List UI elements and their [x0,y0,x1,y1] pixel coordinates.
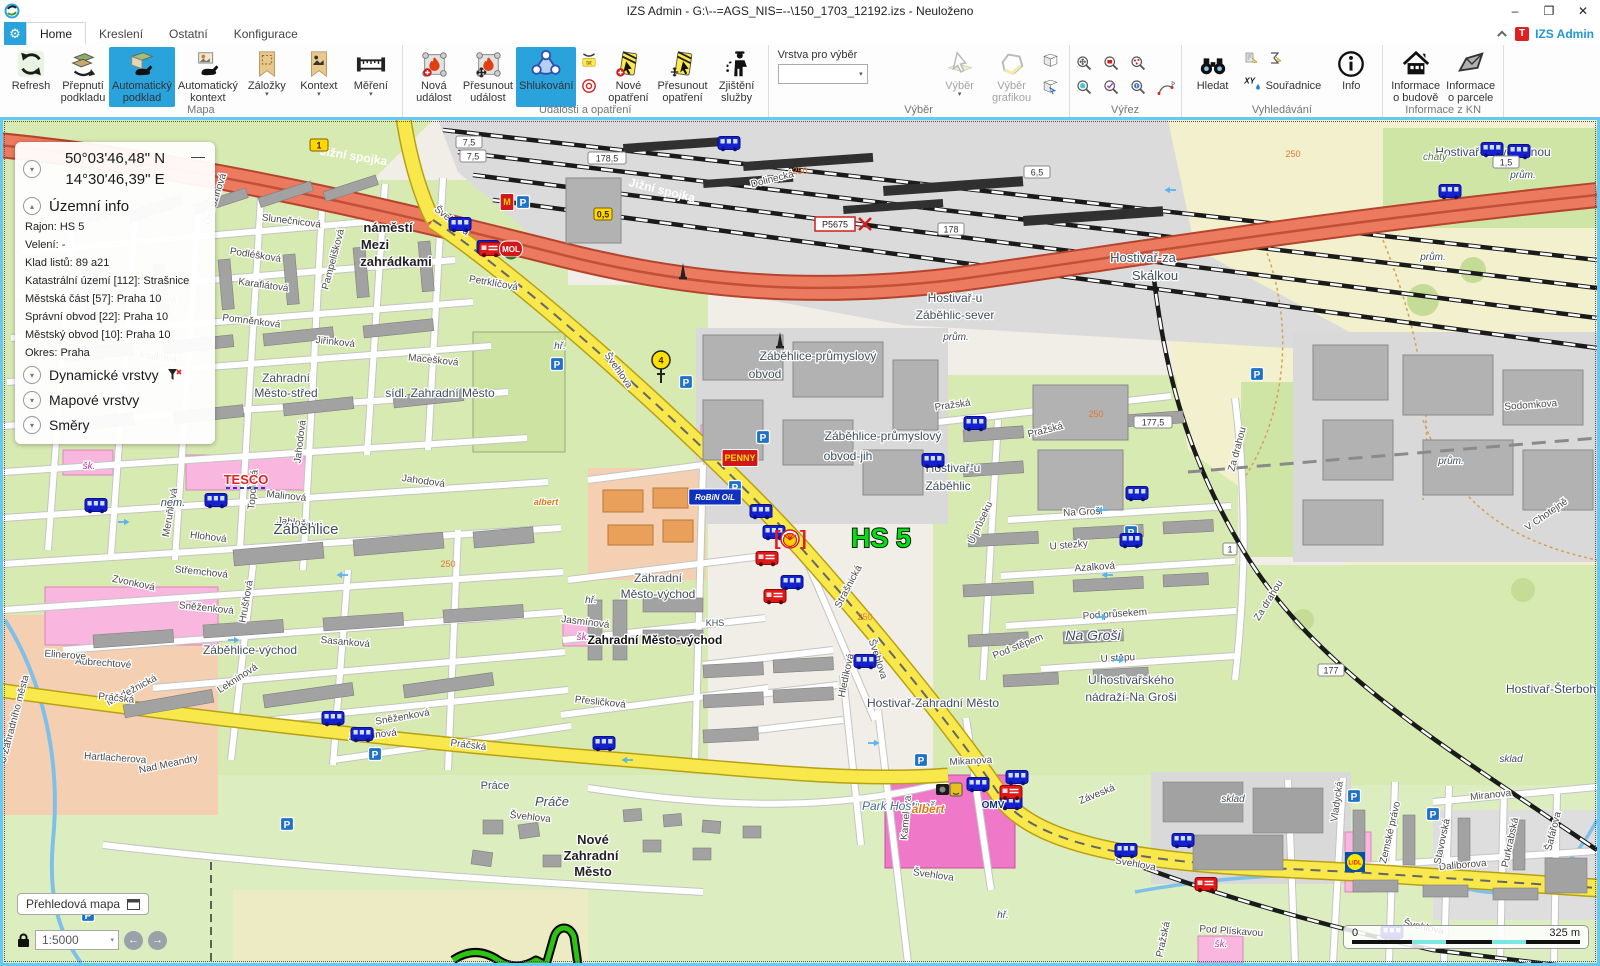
zjisteni-sluzby-button[interactable]: Zjištění služby [711,47,763,107]
coordinate-lon: 14°30'46,39" E [41,169,189,190]
coords-expand-icon[interactable]: ▾ [23,160,41,178]
parcel-icon [1456,48,1486,80]
brand-logo-icon: T [1515,27,1529,41]
coordinates: 50°03'46,48" N 14°30'46,39" E [41,148,189,190]
history-back-button[interactable]: ← [124,931,143,950]
info-icon [1336,48,1366,80]
svg-text:[: [ [774,528,781,550]
automaticky-podklad-label: Automatický podklad [112,80,172,104]
chevron-down-icon: ▾ [369,92,373,98]
zoom-circle-icon[interactable] [1075,77,1095,97]
informace-o-parcele-label: Informace o parcele [1446,80,1495,104]
district-label: Práče [535,794,569,809]
info-button[interactable]: Info [1325,47,1377,107]
hledat-label: Hledat [1197,80,1229,92]
scale-select[interactable]: 1:5000 ▾ [35,930,119,950]
district-label: Záběhlice [273,521,338,538]
parking-icon[interactable] [1251,368,1264,381]
district-label: sklad [1221,794,1245,805]
shlukovani-button[interactable]: Shlukování [516,47,576,107]
bus-icon[interactable] [351,728,373,743]
udalost-mini: txt [576,47,602,99]
district-label: Hostivař-Zahradní Město [867,696,999,710]
ribbon-group-label: Vyhledávání [1182,104,1383,116]
zoom-check-icon[interactable] [1102,77,1122,97]
close-button[interactable]: ✕ [1566,0,1600,22]
section-uzemni-info: Územní info [49,198,129,215]
info-label: Info [1342,80,1360,92]
firefighter-icon [722,48,752,80]
logo-robin-oil: RoBiN OiL [689,489,742,505]
svg-text:txt: txt [587,61,593,67]
scale-bar-min: 0 [1352,927,1358,939]
district-label: zahrádkami [360,254,432,269]
shlukovani-label: Shlukování [519,80,573,92]
vrstva-pro-vyber-label: Vrstva pro výběr [778,49,930,61]
territory-info-line: Městský obvod [10]: Praha 10 [25,329,207,341]
district-label: Záběhlice-průmyslový [825,429,942,443]
crossing-badge-label: P5675 [822,220,848,230]
district-label: Skalkou [1132,268,1178,283]
km-badge-label: 7,5 [467,152,480,162]
tab-konfigurace[interactable]: Konfigurace [221,22,311,45]
fire-truck-icon[interactable] [1195,878,1217,893]
fire-truck-icon[interactable] [1000,786,1022,801]
km-badge-label: 1 [1227,545,1232,555]
map-viewport[interactable]: P [0,117,1600,966]
binoculars-icon [1198,48,1228,80]
ruler-icon [356,48,386,80]
vrstva-pro-vyber: Vrstva pro výběr▾ [774,47,934,86]
bus-icon[interactable] [322,712,344,727]
elevation-label: 250 [1285,149,1300,159]
filter-icon[interactable] [167,368,182,382]
district-label: Práce [481,780,510,792]
district-label: Zahradní [564,848,619,863]
bus-icon[interactable] [1439,185,1461,200]
district-label: chaty [1423,152,1448,163]
elevation-label: 250 [1088,409,1103,419]
zoom-a-icon[interactable] [1129,77,1149,97]
elevation-label: 250 [440,559,455,569]
elevation-label: 250 [792,166,807,176]
hledat-button[interactable]: Hledat [1187,47,1239,107]
svg-text:TESCO: TESCO [224,472,269,487]
bus-icon[interactable] [593,737,615,752]
district-label: hř. [585,595,597,606]
title-bar: IZS Admin - G:\--=AGS_NIS=--\150_1703_12… [0,0,1600,22]
street-label: U stěpu [1100,652,1135,665]
km-badge-label: 178,5 [596,154,619,164]
parking-icon[interactable] [369,748,382,761]
panel-collapse-button[interactable]: — [189,148,207,164]
street-label: Na Groši [1063,506,1103,519]
district-label: šk. [577,632,590,643]
presunout-opatreni-button[interactable]: Přesunout opatření [654,47,710,107]
logo-omv: OMV [982,800,1005,811]
district-label: prům. [1419,251,1446,263]
ribbon-tabs: HomeKresleníOstatníKonfigurace [26,22,311,45]
km-badge-label: 177 [1323,666,1338,676]
txt-icon[interactable]: txt [578,49,600,71]
map-lamp-icon [127,48,157,80]
district-label: Mezi [361,237,389,252]
chevron-down-icon: ▾ [265,92,269,98]
hs5-station-label[interactable]: HS 5 [851,523,911,553]
mapove-vrstvy-expand-icon[interactable]: ▾ [23,391,41,409]
event-new-icon [419,48,449,80]
fire-truck-icon[interactable] [756,552,778,567]
house-icon [1401,48,1431,80]
bus-icon[interactable] [718,137,740,152]
automaticky-kontext-button[interactable]: Automatický kontext [175,47,241,107]
lock-icon[interactable] [17,933,30,948]
scale-caret-icon: ▾ [110,936,118,944]
road-number-label: 0,5 [597,210,610,220]
vyber-button[interactable]: Výběr▾ [934,47,986,107]
parking-icon[interactable] [517,196,530,209]
ribbon-tab-row: ⚙ HomeKresleníOstatníKonfigurace T IZS A… [0,22,1600,45]
bookmark-dashed-icon [252,48,282,80]
district-label: sídl. Zahradní Město [385,386,495,400]
vrstva-pro-vyber-select[interactable]: ▾ [778,64,868,84]
refresh-label: Refresh [12,80,51,92]
gear-icon: ⚙ [9,26,21,42]
bus-icon[interactable] [922,454,944,469]
select-cursor-icon [945,48,975,80]
district-label: Hostivař-u [928,291,983,305]
smery-expand-icon[interactable]: ▾ [23,416,41,434]
sheet-select-icon[interactable] [1040,49,1062,71]
km-badge-label: 6,5 [1031,168,1044,178]
prepnuti-podkladu-button[interactable]: Přepnutí podkladu [57,47,109,107]
parking-icon[interactable] [915,754,928,767]
ribbon-group-label: Informace z KN [1383,104,1503,116]
parking-icon[interactable] [1427,808,1440,821]
minimize-button[interactable]: – [1498,0,1532,22]
district-label: KHS [706,618,725,628]
sheet-export-icon[interactable] [1040,75,1062,97]
nove-opatreni-button[interactable]: Nové opatření [602,47,654,107]
svg-text:MOL: MOL [502,245,520,254]
fire-truck-icon[interactable] [764,590,786,605]
bus-icon[interactable] [1172,834,1194,849]
district-label: Záběhlice-průmyslový [760,349,877,363]
bus-icon[interactable] [1115,844,1137,859]
refresh-button[interactable]: Refresh [5,47,57,107]
district-label: šk. [1215,939,1228,950]
ribbon-group-label: Mapa [0,104,402,116]
cluster-icon [531,48,561,80]
shell-logo: [] [774,528,807,550]
svg-text:albert: albert [534,497,560,507]
district-label: prům. [942,331,969,343]
prepnuti-podkladu-label: Přepnutí podkladu [61,80,106,104]
sheet-calc-icon[interactable] [1243,50,1259,71]
nova-udalost-label: Nová událost [416,80,451,104]
uzemni-info-collapse-icon[interactable]: ▴ [23,197,41,215]
district-label: Záběhlic-sever [916,308,995,322]
target-icon[interactable] [578,75,600,97]
lidl-logo: LiDL [1345,852,1365,872]
zoom-route-icon[interactable] [1156,77,1176,97]
district-label: Na Groši [1065,627,1121,643]
logo-m: M [500,194,514,211]
mereni-button[interactable]: Měření▾ [345,47,397,107]
ribbon-group: HledatXYSouřadniceInfoVyhledávání [1182,45,1384,117]
bus-icon[interactable] [750,505,772,520]
district-label: obvod [749,367,782,381]
bus-icon[interactable] [449,218,471,233]
parking-icon[interactable] [551,358,564,371]
ribbon-group: Výřez [1070,45,1182,117]
svg-text:OMV: OMV [982,800,1005,811]
informace-o-budove-label: Informace o budově [1391,80,1440,104]
district-label: prům. [1509,169,1536,181]
maximize-button[interactable]: ❐ [1532,0,1566,22]
map-canvas[interactable]: P [3,120,1597,963]
km-badge-label: 178 [943,225,958,235]
refresh-icon [16,48,46,80]
district-label: Zahradní [262,371,311,385]
ribbon-group: Vrstva pro výběr▾Výběr▾Výběr grafikouVýb… [769,45,1070,117]
ribbon-right-controls: T IZS Admin [1495,22,1594,45]
road-number-label: 4 [658,356,663,366]
overview-map-label: Přehledová mapa [26,897,120,911]
zoom-rect-icon[interactable] [1102,53,1122,73]
district-label: Město [574,864,612,879]
bookmark-pin-icon [304,48,334,80]
territory-info-panel: ▾ 50°03'46,48" N 14°30'46,39" E — ▴ Územ… [15,142,215,444]
bus-icon[interactable] [964,417,986,432]
km-badge-label: 177,5 [1142,418,1165,428]
window-title: IZS Admin - G:\--=AGS_NIS=--\150_1703_12… [0,4,1600,18]
ribbon-collapse-icon[interactable] [1495,27,1509,41]
logo-tesco: TESCO [224,472,269,488]
presunout-udalost-label: Přesunout událost [463,80,513,104]
parking-icon[interactable] [757,431,770,444]
scale-value: 1:5000 [42,933,79,947]
informace-o-parcele-button[interactable]: Informace o parcele [1443,47,1498,107]
bus-icon[interactable] [1120,534,1142,549]
event-move-icon [473,48,503,80]
bus-icon[interactable] [1126,487,1148,502]
xy-icon[interactable]: XY [1243,74,1263,97]
zjisteni-sluzby-label: Zjištění služby [719,80,754,104]
district-label: šk. [83,461,96,472]
district-label: nem. [161,497,185,509]
nove-opatreni-label: Nové opatření [608,80,648,104]
parking-icon[interactable] [1348,790,1361,803]
ribbon-group: Nová událostPřesunout událostShlukovánít… [403,45,769,117]
district-label: prům. [1437,455,1464,467]
district-label: Nové [577,832,609,847]
fire-truck-icon[interactable] [479,243,501,258]
district-label: Hostivař-za [1110,250,1177,265]
territory-info-line: Katastrální území [112]: Strašnice [25,275,207,287]
zalozky-button[interactable]: Záložky▾ [241,47,293,107]
logo-albert: albert [534,497,560,507]
parking-icon[interactable] [281,818,294,831]
brand-name: IZS Admin [1535,27,1594,41]
automaticky-kontext-label: Automatický kontext [178,80,238,104]
district-label: Záběhlice-východ [203,643,297,657]
km-badge-label: 1,5 [1500,158,1513,168]
measure-new-icon [613,48,643,80]
district-label: obvod-jih [824,449,873,463]
chevron-down-icon: ▾ [859,70,867,78]
district-label: náměstí [363,220,413,235]
svg-text:RoBiN OiL: RoBiN OiL [695,493,735,502]
automaticky-podklad-button[interactable]: Automatický podklad [109,47,175,107]
bus-icon[interactable] [781,576,803,591]
bus-icon[interactable] [1006,771,1028,786]
ribbon: RefreshPřepnutí podkladuAutomatický podk… [0,45,1600,118]
scale-controls: 1:5000 ▾ ← → [17,930,167,950]
district-label: Město-střed [254,386,317,400]
souradnice-label: Souřadnice [1266,80,1322,92]
logo-albert: albert [912,802,946,816]
svg-text:albert: albert [912,802,946,816]
district-label: hř. [997,910,1009,921]
gear-menu-button[interactable]: ⚙ [4,22,26,45]
district-label: Záběhlic [925,479,970,493]
territory-info-line: Klad listů: 89 a21 [25,257,207,269]
select-lasso-icon [997,48,1027,80]
territory-info-line: Rajon: HS 5 [25,221,207,233]
ribbon-group-label: Výřez [1070,104,1181,116]
history-forward-button[interactable]: → [148,931,167,950]
presunout-udalost-button[interactable]: Přesunout událost [460,47,516,107]
dynamicke-vrstvy-expand-icon[interactable]: ▾ [23,366,41,384]
vyber-grafikou-button[interactable]: Výběr grafikou [986,47,1038,107]
informace-o-budove-button[interactable]: Informace o budově [1388,47,1443,107]
district-label: Zahradní Město-východ [588,633,723,647]
zoom-points-icon[interactable] [1129,53,1149,73]
section-smery: Směry [49,417,89,433]
territory-info-fields: Rajon: HS 5Velení: -Klad listů: 89 a21Ka… [23,221,207,359]
sheet-sigma-icon[interactable] [1267,50,1283,71]
scale-bar-line [1352,940,1580,944]
territory-info-line: Okres: Praha [25,347,207,359]
elevation-label: 250 [857,612,872,622]
district-label: Hostivař-Šterboh [1506,681,1596,696]
chevron-down-icon: ▾ [958,92,962,98]
bus-icon[interactable] [854,655,876,670]
scale-bar-max: 325 m [1549,927,1580,939]
street-label: Mikanova [949,755,993,768]
measure-move-icon [668,48,698,80]
territory-info-line: Velení: - [25,239,207,251]
ribbon-group: Informace o budověInformace o parceleInf… [1383,45,1504,117]
svg-text:PENNY: PENNY [724,453,755,463]
district-label: Zahradní [634,571,683,585]
souradnice: XYSouřadnice [1239,47,1326,100]
tab-ostatní[interactable]: Ostatní [156,22,221,45]
km-badge-label: 7,5 [463,138,476,148]
vyber-mini [1038,47,1064,99]
section-dynamicke-vrstvy: Dynamické vrstvy [49,367,159,383]
section-mapove-vrstvy: Mapové vrstvy [49,392,139,408]
ribbon-group: RefreshPřepnutí podkladuAutomatický podk… [0,45,403,117]
nova-udalost-button[interactable]: Nová událost [408,47,460,107]
window-controls: – ❐ ✕ [1498,0,1600,22]
tab-home[interactable]: Home [26,22,86,45]
scale-bar: 0 325 m [1343,925,1589,949]
bus-icon[interactable] [85,499,107,514]
svg-text:]: ] [800,528,807,550]
road-number-label: 1 [316,141,321,151]
presunout-opatreni-label: Přesunout opatření [657,80,707,104]
district-label: nádraží-Na Groši [1085,690,1176,704]
vyrez-tools [1075,47,1176,97]
district-label: Město-východ [621,587,696,601]
overview-window-icon [127,899,140,910]
district-label: hř. [554,341,566,352]
vyber-grafikou-label: Výběr grafikou [992,80,1031,104]
svg-text:XY: XY [1243,76,1256,85]
logo-penny: PENNY [722,450,758,467]
map-switch-icon [68,48,98,80]
overview-map-button[interactable]: Přehledová mapa [17,893,149,915]
bus-icon[interactable] [1481,143,1503,158]
district-label: sklad [1499,754,1523,765]
ribbon-group-label: Události a opatření [403,104,768,116]
ribbon-group-label: Výběr [769,104,1069,116]
svg-text:M: M [503,197,511,207]
tab-kreslení[interactable]: Kreslení [86,22,156,45]
territory-info-line: Správní obvod [22]: Praha 10 [25,311,207,323]
bus-icon[interactable] [967,778,989,793]
kontext-button[interactable]: Kontext▾ [293,47,345,107]
coordinate-lat: 50°03'46,48" N [41,148,189,169]
chevron-down-icon: ▾ [317,92,321,98]
territory-info-line: Městská část [57]: Praha 10 [25,293,207,305]
svg-text:LiDL: LiDL [1348,861,1362,867]
context-lamp-icon [193,48,223,80]
district-label: U hostivařského [1088,673,1174,687]
bus-icon[interactable] [205,494,227,509]
zoom-arrows-icon[interactable] [1075,53,1095,73]
parking-icon[interactable] [680,376,693,389]
